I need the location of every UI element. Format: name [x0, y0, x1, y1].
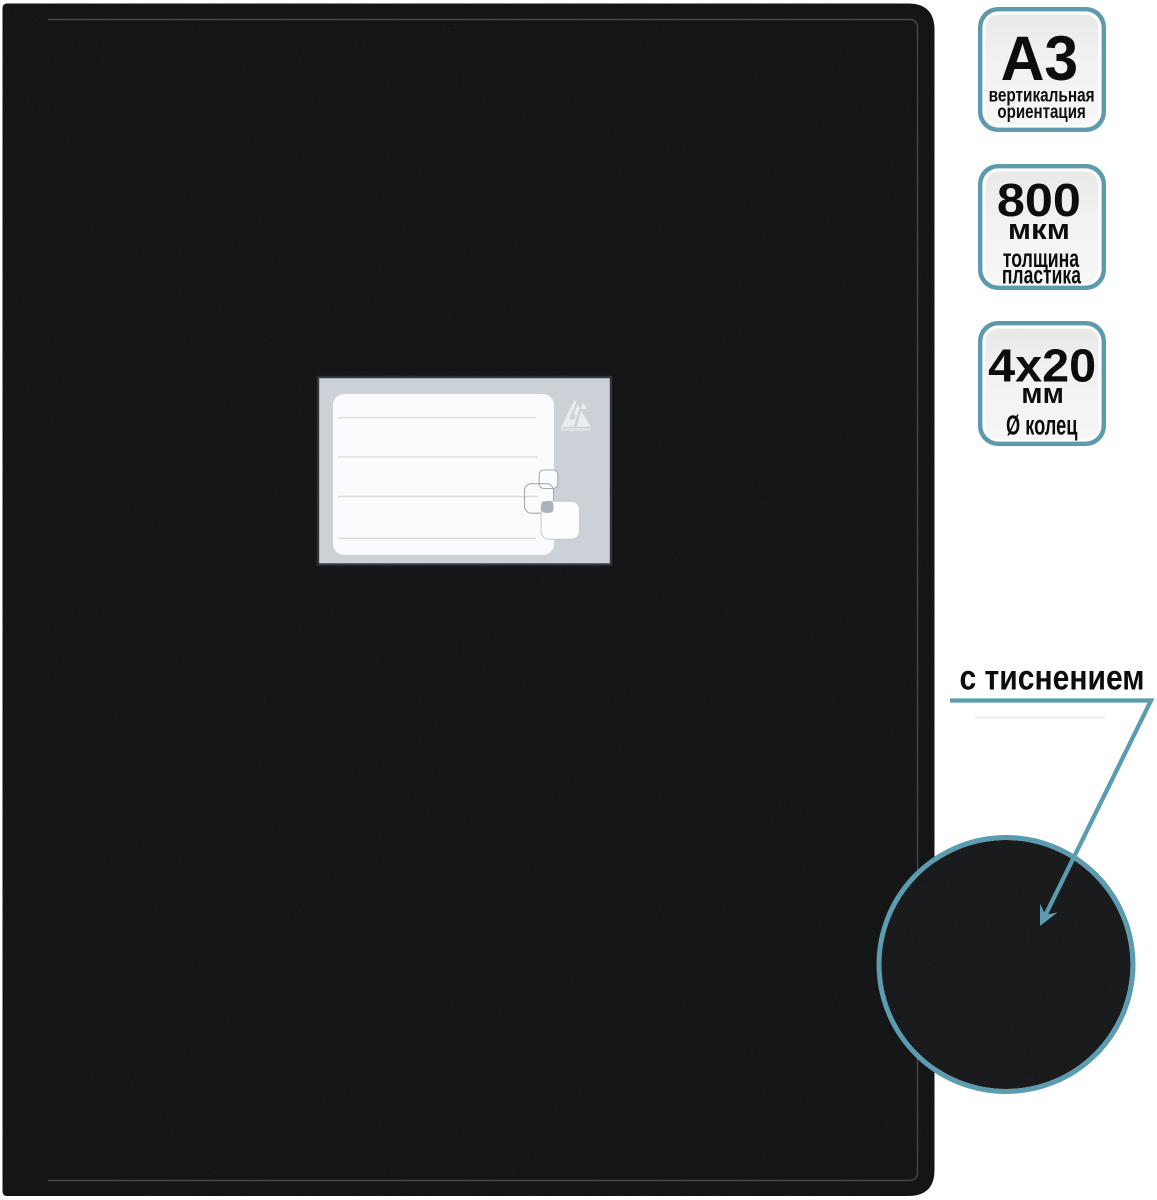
svg-text:ориентация: ориентация — [997, 102, 1085, 123]
svg-text:с тиснением: с тиснением — [960, 658, 1145, 698]
svg-text:мкм: мкм — [1008, 214, 1070, 246]
svg-text:А3: А3 — [1001, 24, 1079, 94]
svg-text:Бюрократ: Бюрократ — [561, 427, 591, 433]
svg-text:пластика: пластика — [1002, 262, 1082, 290]
svg-text:Ø колец: Ø колец — [1006, 410, 1078, 441]
svg-text:мм: мм — [1021, 378, 1064, 410]
